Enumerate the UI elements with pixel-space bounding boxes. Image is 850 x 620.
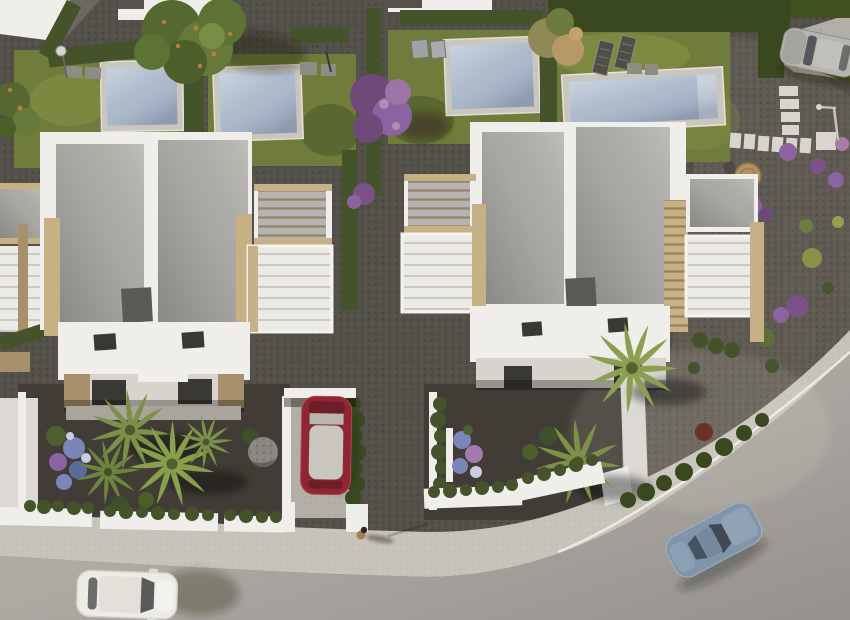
car-trunk <box>308 480 342 489</box>
stepping-stone <box>743 134 755 150</box>
garden-wall <box>282 396 291 518</box>
green-shrub <box>799 219 813 233</box>
red-car <box>300 396 356 495</box>
pergola-slats <box>258 191 326 239</box>
skylight <box>181 331 204 348</box>
travertine-pillar <box>248 246 258 332</box>
grass-shadow <box>300 104 360 156</box>
travertine-pillar <box>44 218 60 336</box>
building-roof-edge <box>388 0 422 8</box>
pool-2 <box>213 64 304 141</box>
staircase-steps <box>250 248 330 330</box>
travertine-pillar <box>750 222 764 342</box>
tree-highlight <box>392 122 400 130</box>
hedge-strip <box>292 28 348 43</box>
purple-shrub <box>347 195 361 209</box>
tree-canopy <box>353 113 383 143</box>
pool-3-shine <box>450 43 534 110</box>
side-mirror <box>149 568 158 573</box>
tree-canopy <box>12 108 40 136</box>
tree-canopy <box>134 34 170 70</box>
roof-shade <box>576 127 670 304</box>
skylight <box>93 333 116 350</box>
stepping-stone <box>729 133 741 149</box>
stepping-stone <box>781 112 800 122</box>
rear-window <box>87 577 97 609</box>
green-shrub <box>765 359 779 373</box>
stepping-stone <box>779 86 798 96</box>
pool-1-shine <box>106 66 177 125</box>
purple-shrub <box>759 207 773 221</box>
staircase-steps <box>404 236 472 310</box>
tall-hedge <box>548 0 790 32</box>
white-car <box>76 565 240 620</box>
underbrush <box>522 444 538 460</box>
pergola-slats <box>408 181 470 227</box>
travertine-pillar <box>18 224 28 332</box>
roof-shade <box>158 140 248 322</box>
windshield <box>140 577 154 613</box>
roof-shade <box>482 132 564 304</box>
car-roof <box>98 576 141 613</box>
purple-shrub <box>773 307 789 323</box>
purple-shrub <box>779 143 797 161</box>
stepping-stone <box>757 136 769 152</box>
hedge-strip <box>790 0 850 18</box>
tree-highlight <box>379 99 389 109</box>
staircase-steps <box>688 238 756 314</box>
lamp-head <box>56 46 66 56</box>
purple-shrub <box>810 158 826 174</box>
ac-unit <box>430 40 446 58</box>
lamp-head <box>318 43 327 52</box>
slab <box>300 62 317 75</box>
roof-chimney <box>121 287 153 323</box>
garden-wall <box>18 392 26 522</box>
pool-3 <box>444 36 541 115</box>
terrace-roof-shade <box>690 179 754 227</box>
pergola-beam <box>404 226 476 233</box>
stepping-stone <box>780 99 799 109</box>
pergola-beam <box>254 184 332 191</box>
hedge-strip <box>400 10 542 25</box>
windshield <box>310 413 344 425</box>
lamp-head <box>816 104 822 110</box>
tree-canopy <box>385 79 411 105</box>
purple-shrub <box>786 295 808 317</box>
pergola-beam <box>254 238 332 245</box>
green-shrub <box>832 216 844 228</box>
underbrush <box>539 427 557 445</box>
pedestrian-head <box>361 527 367 533</box>
tree-highlight <box>569 27 583 41</box>
tree-fruit <box>8 88 12 92</box>
slab <box>645 64 658 75</box>
porch-slab <box>138 366 188 382</box>
green-shrub <box>802 248 822 268</box>
stepping-stone <box>799 138 811 154</box>
car-hood <box>309 401 345 415</box>
car-hood <box>155 580 173 613</box>
hedge-divider <box>342 150 358 310</box>
glass-roof <box>309 425 344 480</box>
travertine-wall <box>0 352 30 372</box>
tree-fruit <box>18 106 23 111</box>
ac-unit <box>411 39 429 59</box>
stepping-stone <box>816 132 836 150</box>
aerial-render <box>0 0 850 620</box>
red-shrub <box>695 423 713 441</box>
tree-highlight <box>199 23 225 49</box>
pool-2-shine <box>219 71 297 136</box>
underbrush <box>138 492 154 508</box>
stepping-stone <box>782 125 799 135</box>
slab <box>627 63 642 74</box>
purple-shrub <box>828 172 844 188</box>
green-shrub <box>822 282 834 294</box>
planter-wall <box>446 428 453 482</box>
pool-4-shine <box>569 74 718 126</box>
pergola-beam <box>404 174 476 181</box>
slab <box>85 67 102 80</box>
sunlit-grass <box>30 74 110 126</box>
building-roof-edge <box>118 0 144 9</box>
tree-canopy <box>163 40 207 84</box>
slab <box>66 66 83 79</box>
skylight <box>522 321 543 336</box>
gate-pillar <box>283 502 295 532</box>
